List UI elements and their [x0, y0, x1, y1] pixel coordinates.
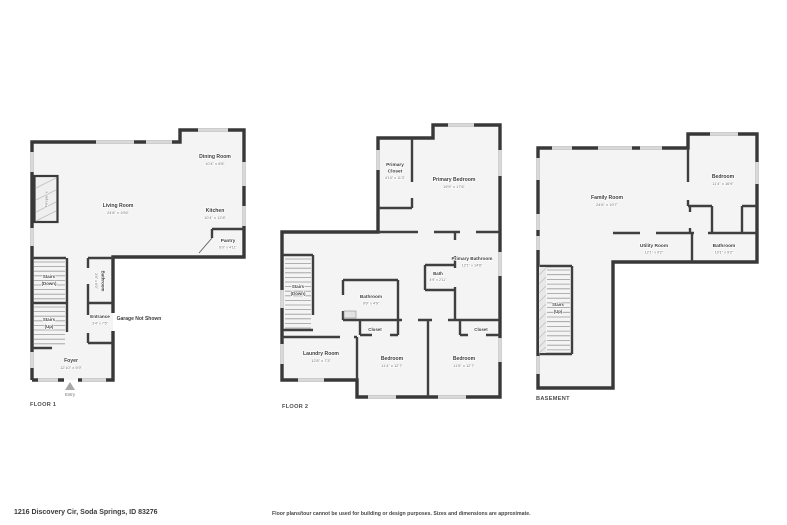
- family-room-dims: 24'6" x 19'7": [596, 202, 619, 207]
- window: [640, 146, 662, 150]
- stairs-up-label-2: (Up): [45, 324, 54, 329]
- foyer-dims: 12'10" x 5'9": [60, 365, 83, 370]
- entrance-name: Entrance: [90, 314, 110, 319]
- pantry-name: Pantry: [221, 238, 236, 243]
- disclaimer-text: Floor plans/tour cannot be used for buil…: [272, 511, 531, 517]
- window: [498, 252, 502, 276]
- window: [536, 214, 540, 230]
- entry-label: Entry: [65, 392, 76, 397]
- primary-closet-name-2: Closet: [388, 169, 403, 175]
- stairs-down-label-2: (Down): [42, 281, 57, 286]
- floor2-stairs-label-2: (Down): [291, 291, 306, 296]
- utility-room-name: Utility Room: [640, 243, 668, 249]
- floor1-title: FLOOR 1: [30, 402, 56, 408]
- window: [198, 128, 228, 132]
- primary-bedroom-dims: 19'9" x 17'6": [443, 184, 466, 189]
- window: [30, 152, 34, 172]
- window: [242, 162, 246, 186]
- kitchen-name: Kitchen: [206, 208, 225, 214]
- entry-arrow-icon: [65, 382, 75, 390]
- basement-stairs-label-1: Stairs: [552, 302, 564, 307]
- window: [498, 150, 502, 176]
- laundry-dims: 12'8" x 7'3": [311, 358, 331, 363]
- window: [280, 290, 284, 308]
- primary-bathroom-dims: 12'1" x 14'6": [462, 264, 483, 268]
- family-room-name: Family Room: [591, 195, 623, 201]
- window: [146, 140, 172, 144]
- closet2-label: Closet: [474, 327, 488, 332]
- garage-note: Garage Not Shown: [117, 316, 162, 322]
- window: [448, 123, 474, 127]
- living-room-dims: 24'8" x 19'6": [107, 210, 130, 215]
- basement-plan: Family Room 24'6" x 19'7" Bedroom 11'4" …: [536, 132, 759, 402]
- window: [38, 378, 58, 382]
- floor-plan-page: Fireplace Living Room 24'8" x 19'6" Dini…: [0, 0, 787, 525]
- window: [438, 395, 466, 399]
- window: [598, 146, 632, 150]
- window: [82, 378, 106, 382]
- window: [376, 150, 380, 170]
- stairs-down-label-1: Stairs: [43, 274, 56, 279]
- bath-name: Bath: [433, 271, 443, 276]
- floor2-title: FLOOR 2: [282, 404, 308, 410]
- basement-bathroom-dims: 10'1" x 9'2": [715, 251, 734, 255]
- window: [536, 356, 540, 374]
- basement-stairs-label-2: (Up): [554, 309, 563, 314]
- window: [96, 140, 134, 144]
- window: [536, 158, 540, 180]
- fireplace-label: Fireplace: [45, 191, 49, 207]
- floor1-plan: Fireplace Living Room 24'8" x 19'6" Dini…: [30, 128, 246, 408]
- bedroom2-name: Bedroom: [453, 356, 476, 362]
- fireplace: Fireplace: [35, 176, 58, 222]
- primary-closet-dims: 4'10" x 11'3": [385, 176, 406, 180]
- primary-bedroom-name: Primary Bedroom: [433, 177, 476, 183]
- floor2-stairs-label-1: Stairs: [292, 284, 305, 289]
- living-room-name: Living Room: [103, 203, 134, 209]
- stairs-up-label-1: Stairs: [43, 317, 56, 322]
- basement-bedroom-name: Bedroom: [712, 174, 735, 180]
- bedroom2-dims: 11'5" x 12'7": [453, 363, 475, 368]
- window: [498, 338, 502, 362]
- primary-bathroom-name: Primary Bathroom: [452, 256, 493, 261]
- bath-dims: 4'9" x 2'11": [430, 278, 448, 282]
- window: [242, 206, 246, 226]
- basement-title: BASEMENT: [536, 396, 570, 402]
- primary-closet-name-1: Primary: [386, 162, 404, 168]
- window: [536, 236, 540, 250]
- window: [755, 162, 759, 184]
- closet1-label: Closet: [368, 327, 382, 332]
- property-address: 1216 Discovery Cir, Soda Springs, ID 832…: [14, 509, 158, 516]
- bathroom1-dims: 3'6" x 6'0": [94, 273, 98, 289]
- bathroom2-dims: 9'9" x 4'9": [363, 302, 380, 306]
- window: [280, 344, 284, 364]
- bathroom-counter: [344, 311, 356, 318]
- window: [710, 132, 738, 136]
- window: [30, 352, 34, 368]
- entrance-dims: 3'4" x 7'5": [92, 322, 108, 326]
- basement-bedroom-dims: 11'4" x 16'9": [712, 181, 734, 186]
- bathroom2-name: Bathroom: [360, 294, 382, 299]
- laundry-name: Laundry Room: [303, 351, 339, 357]
- utility-room-dims: 12'1" x 9'2": [645, 251, 664, 255]
- dining-room-name: Dining Room: [199, 154, 231, 160]
- bedroom1-name: Bedroom: [381, 356, 404, 362]
- kitchen-dims: 10'4" x 12'8": [204, 215, 227, 220]
- window: [368, 395, 396, 399]
- bathroom1-name: Bathroom: [101, 271, 106, 292]
- window: [552, 146, 572, 150]
- floor-plans-canvas: Fireplace Living Room 24'8" x 19'6" Dini…: [0, 0, 787, 525]
- window: [30, 228, 34, 246]
- bedroom1-dims: 11'4" x 12'7": [381, 363, 403, 368]
- foyer-name: Foyer: [64, 358, 78, 364]
- window: [298, 378, 324, 382]
- dining-room-dims: 10'4" x 8'8": [205, 161, 225, 166]
- basement-bathroom-name: Bathroom: [713, 243, 736, 249]
- floor1-footprint: [32, 130, 244, 380]
- pantry-dims: 6'0" x 4'11": [219, 246, 238, 250]
- floor2-plan: Primary Closet 4'10" x 11'3" Primary Bed…: [280, 123, 502, 410]
